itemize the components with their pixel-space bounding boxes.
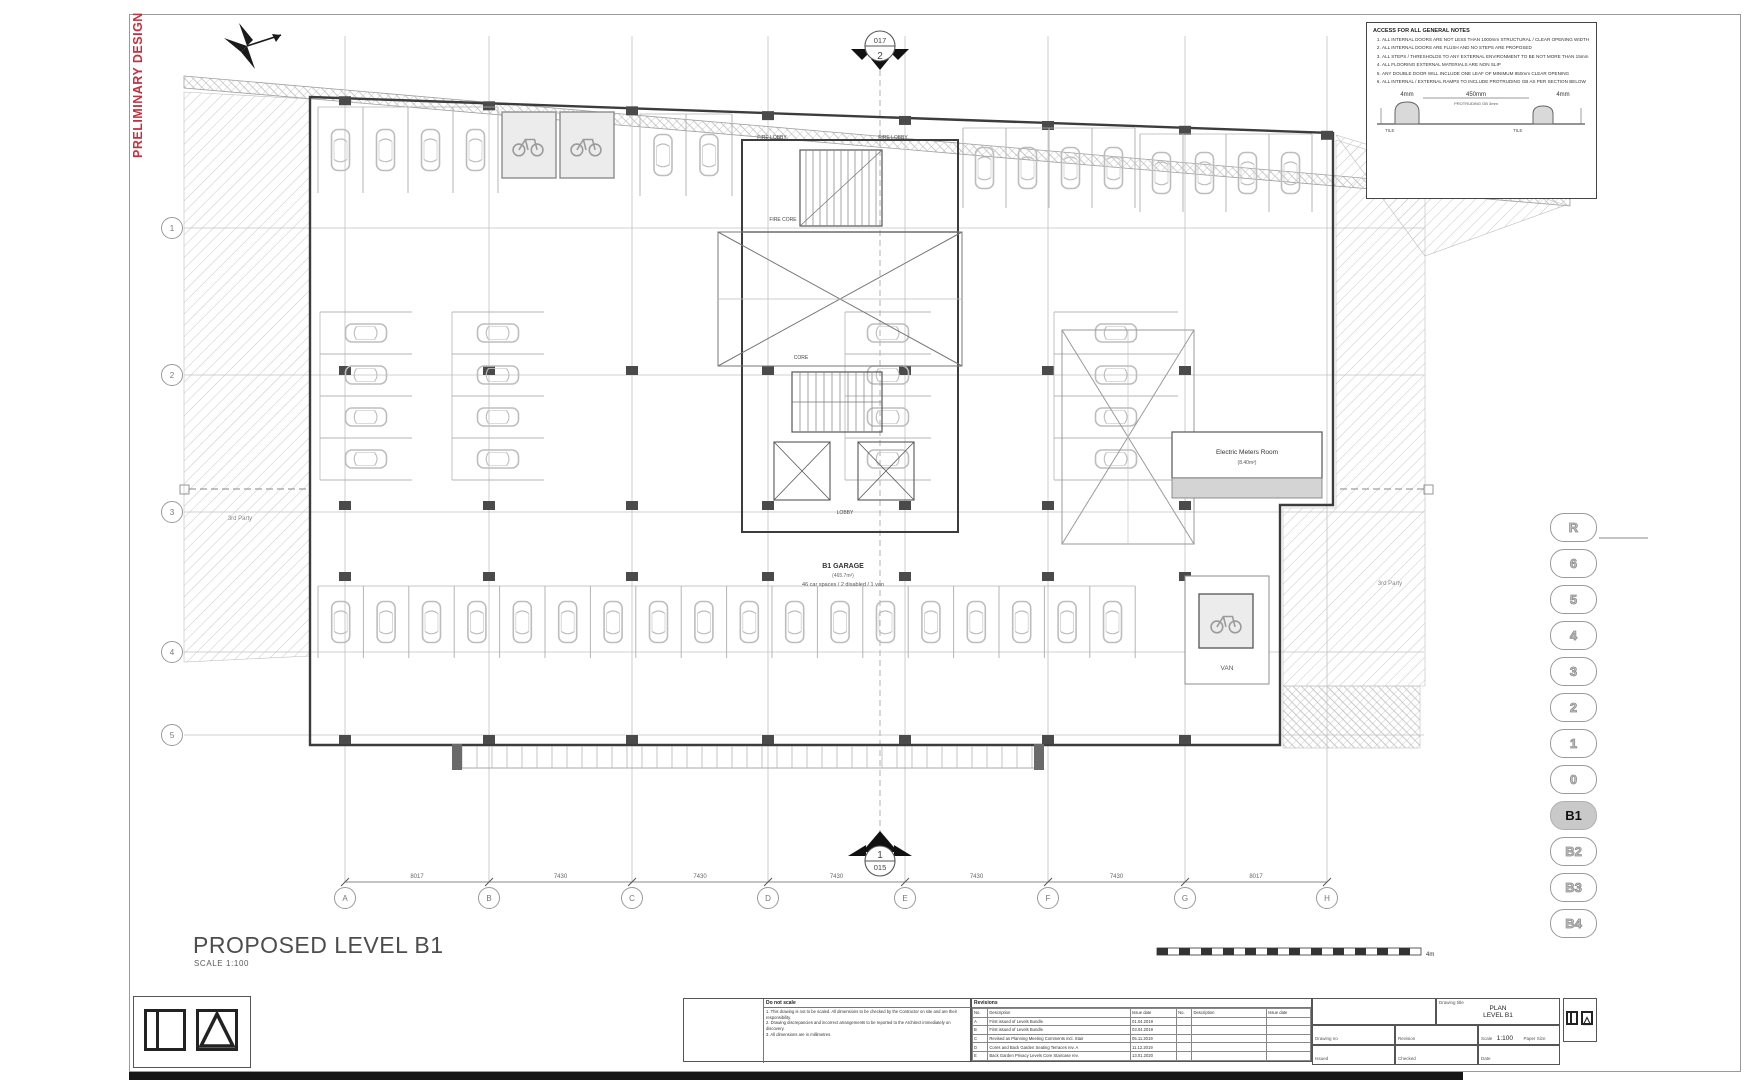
car-icon [478,324,519,342]
drawing-title-value-2: LEVEL B1 [1439,1012,1557,1019]
grid-letter: A [342,894,348,903]
general-notes-panel: ACCESS FOR ALL GENERAL NOTES ALL INTERNA… [1366,22,1597,199]
building-outline [310,97,1333,745]
column [1042,572,1054,581]
level-tab-3[interactable]: 3 [1550,657,1597,686]
rev-cell [1267,1051,1311,1060]
car-icon [377,130,395,171]
rev-cell: D [973,1043,988,1052]
level-tab-b1[interactable]: B1 [1550,801,1597,830]
rev-cell [1177,1026,1192,1035]
detail-dim-right: 4mm [1556,92,1569,98]
rev-row: BFirst issued of Levels Bundle03.04.2019 [973,1026,1311,1035]
rev-cell [1192,1026,1267,1035]
svg-text:015: 015 [874,863,887,872]
rev-cell [1267,1043,1311,1052]
grid-number: 2 [170,371,175,380]
revisions-table: No.DescriptionIssue dateNo.DescriptionIs… [972,1008,1311,1061]
car-icon [604,602,622,643]
svg-text:1: 1 [877,850,883,861]
scale-bar-label: 4m [1426,952,1434,958]
page-title: PROPOSED LEVEL B1 [193,932,444,959]
general-note-item: ALL STEPS / THRESHOLDS TO ANY EXTERNAL E… [1382,54,1590,60]
column [626,572,638,581]
garage-label: B1 GARAGE [822,563,864,570]
scale-value: 1:100 [1497,1035,1513,1042]
section-marker-bottom: 1 015 [848,831,912,876]
rev-cell [1267,1034,1311,1043]
car-icon [700,135,718,176]
car-icon [831,602,849,643]
svg-text:2: 2 [877,51,883,62]
column [899,735,911,744]
level-tab-6[interactable]: 6 [1550,549,1597,578]
car-icon [650,602,668,643]
cycle-store [502,112,614,178]
tb-note-line: 2. Drawing discrepancies and incorrect a… [766,1020,970,1031]
section-marker-top: 017 2 [851,31,909,70]
drawing-title-value-1: PLAN [1439,1005,1557,1012]
revision-cell: Revision E [1395,1025,1478,1045]
level-tab-4[interactable]: 4 [1550,621,1597,650]
garage-area-label: (465.7m²) [832,573,854,579]
revisions-title: Revisions [972,999,1311,1008]
rev-row: CRevised as Planning Meeting Comments in… [973,1034,1311,1043]
detail-dim-left: 4mm [1400,92,1413,98]
rev-cell [1177,1017,1192,1026]
parking-row [318,586,1135,658]
dim-text: 8017 [410,874,424,880]
car-icon [423,602,441,643]
preliminary-design-stamp: PRELIMINARY DESIGN [131,24,148,158]
page-scale: SCALE 1:100 [194,959,249,968]
parking-row [320,312,412,480]
column [483,366,495,375]
car-icon [332,130,350,171]
do-not-scale-title: Do not scale [764,999,972,1008]
dim-text: 7430 [693,874,707,880]
car-icon [346,450,387,468]
car-icon [922,602,940,643]
grid-number: 5 [170,731,175,740]
bottom-retaining-band [452,744,1044,770]
car-icon [346,324,387,342]
structural-columns [339,96,1333,744]
tb-note-line: 1. This drawing is not to be scaled. All… [766,1009,970,1020]
rev-cell: B [973,1026,988,1035]
column [483,572,495,581]
column [899,116,911,125]
column [762,366,774,375]
ramp-nib-detail: 4mm 450mm 4mm PROTRUDING GB 3mm TILE TIL… [1373,88,1589,138]
column [626,106,638,115]
level-tab-1[interactable]: 1 [1550,729,1597,758]
rev-row: EBack Garden Privacy Levels Core Stairca… [973,1051,1311,1060]
grid-letter: G [1182,894,1188,903]
car-icon [695,602,713,643]
general-note-item: ALL FLOORING EXTERNAL MATERIALS ARE NON … [1382,62,1590,68]
date-cell: Date 26.05.2019 [1478,1045,1560,1065]
car-icon [1096,324,1137,342]
level-tab-b4[interactable]: B4 [1550,909,1597,938]
rev-cell [1177,1051,1192,1060]
svg-text:VAN: VAN [1221,665,1234,672]
column [339,735,351,744]
rev-cell: 13.01.2020 [1131,1051,1177,1060]
room-label-core: CORE [794,355,809,361]
general-note-item: ANY DOUBLE DOOR WILL INCLUDE ONE LEAF OF… [1382,71,1590,77]
third-party-label: 3rd Party [228,516,252,522]
tb-note-line: 3. All dimensions are in millimetres. [766,1032,970,1038]
date-label: Date [1481,1056,1491,1061]
rev-cell: C [973,1034,988,1043]
issued-cell: Issued SC [1312,1045,1395,1065]
rev-cell: E [973,1051,988,1060]
dim-text: 8017 [1249,874,1263,880]
electric-meters-room: Electric Meters Room (8.40m²) [1172,432,1322,498]
grid-letter: D [765,894,771,903]
revisions-box: Revisions No.DescriptionIssue dateNo.Des… [971,998,1312,1062]
rev-cell: Revised as Planning Meeting Comments inc… [988,1034,1131,1043]
issued-label: Issued [1315,1056,1328,1061]
detail-tile-right: TILE [1513,128,1523,133]
checked-label: Checked [1398,1056,1416,1061]
parking-stalls [318,107,1312,658]
parking-row [452,312,544,480]
rev-cell [1267,1017,1311,1026]
svg-text:Electric Meters Room: Electric Meters Room [1216,449,1278,456]
general-note-item: ALL INTERNAL DOORS ARE NOT LESS THAN 100… [1382,37,1590,43]
level-tab-2[interactable]: 2 [1550,693,1597,722]
car-icon [868,450,909,468]
car-icon [1153,153,1171,194]
rev-col-header: Description [988,1009,1131,1018]
general-note-item: ALL INTERNAL DOORS ARE FLUSH AND NO STEP… [1382,45,1590,51]
paper-label: Paper Size [1523,1036,1545,1041]
architect-logo-box [133,996,251,1068]
graphic-scale-bar: 4m [1157,948,1434,958]
rev-cell [1177,1034,1192,1043]
car-icon [1058,602,1076,643]
third-party-label: 3rd Party [1378,581,1402,587]
column [483,501,495,510]
level-tab-b3[interactable]: B3 [1550,873,1597,902]
rev-cell [1192,1043,1267,1052]
column [1042,501,1054,510]
sheet-edge-bar [129,1072,1463,1080]
dim-text: 7430 [554,874,568,880]
rev-cell: First issued of Levels Bundle [988,1017,1131,1026]
notes-list: ALL INTERNAL DOORS ARE NOT LESS THAN 100… [1373,37,1590,85]
car-icon [346,408,387,426]
rev-cell: A [973,1017,988,1026]
rev-cell: 03.04.2019 [1131,1026,1177,1035]
column [339,501,351,510]
drawing-no-label: Drawing no [1315,1036,1338,1041]
scale-paper-cell: Scale 1:100 Paper Size A1 [1478,1025,1560,1045]
column [899,572,911,581]
car-icon [868,408,909,426]
car-icon [332,602,350,643]
column [339,572,351,581]
car-icon [654,135,672,176]
van-bay: VAN [1185,576,1269,684]
grid-number: 4 [170,648,175,657]
room-label-fire-core: FIRE CORE [769,217,797,223]
general-note-item: ALL INTERNAL / EXTERNAL RAMPS TO INCLUDE… [1382,79,1590,85]
mini-logo-box [1563,998,1597,1042]
column [1321,131,1333,140]
rev-row: DCores and Back Garden Seating Terraces … [973,1043,1311,1052]
column [899,501,911,510]
dim-text: 7430 [830,874,844,880]
rev-cell [1267,1026,1311,1035]
stair-lift-core [718,140,962,532]
drawing-no-cell: Drawing no F2015-A-100 [1312,1025,1395,1045]
grid-letter: H [1324,894,1330,903]
car-icon [559,602,577,643]
car-icon [478,408,519,426]
do-not-scale-notes: 1. This drawing is not to be scaled. All… [764,1008,972,1038]
column [626,501,638,510]
car-icon [422,130,440,171]
dim-text: 7430 [1110,874,1124,880]
column [483,101,495,110]
rev-cell: Cores and Back Garden Seating Terraces r… [988,1043,1131,1052]
detail-tile-left: TILE [1385,128,1395,133]
column [762,111,774,120]
north-arrow-icon [224,23,281,69]
rev-cell: 05.11.2019 [1131,1034,1177,1043]
level-tab-r[interactable]: R [1550,513,1597,542]
parking-row [963,128,1135,208]
logo-door-icon [144,1009,186,1051]
rev-col-header: Issue date [1131,1009,1177,1018]
car-icon [967,602,985,643]
level-tab-b2[interactable]: B2 [1550,837,1597,866]
rev-cell [1192,1034,1267,1043]
column [1179,501,1191,510]
car-icon [468,602,486,643]
rev-cell [1192,1017,1267,1026]
level-tab-0[interactable]: 0 [1550,765,1597,794]
car-icon [1013,602,1031,643]
column [483,735,495,744]
notes-title: ACCESS FOR ALL GENERAL NOTES [1373,28,1590,34]
grid-letter: F [1046,894,1051,903]
car-icon [513,602,531,643]
do-not-scale-box: Do not scale 1. This drawing is not to b… [683,998,971,1062]
parking-row [1054,312,1178,480]
column [1042,366,1054,375]
scale-label: Scale [1481,1036,1492,1041]
rev-row: AFirst issued of Levels Bundle01.04.2019 [973,1017,1311,1026]
rev-cell [1192,1051,1267,1060]
room-label-fire-lobby: FIRE LOBBY [878,135,908,141]
car-icon [1105,148,1123,189]
mini-logo-triangle-icon [1581,1011,1593,1025]
rev-col-header: Issue date [1267,1009,1311,1018]
grid-number: 1 [170,224,175,233]
grid-letter: E [902,894,907,903]
car-icon [740,602,758,643]
drawing-info-box: Drawing title PLAN LEVEL B1 Drawing no F… [1312,998,1560,1066]
car-icon [377,602,395,643]
logo-triangle-icon [196,1009,238,1051]
svg-text:017: 017 [874,36,887,45]
rev-col-header: No. [1177,1009,1192,1018]
rev-cell: 01.04.2019 [1131,1017,1177,1026]
rev-col-header: Description [1192,1009,1267,1018]
car-icon [877,602,895,643]
column [762,501,774,510]
car-icon [467,130,485,171]
column [626,366,638,375]
car-icon [1104,602,1122,643]
drawing-sheet-viewport: ABCDEFGH12345801774307430743074307430801… [0,0,1755,1080]
car-icon [786,602,804,643]
column [626,735,638,744]
checked-cell: Checked RO [1395,1045,1478,1065]
room-label-fire-lobby: FIRE LOBBY [757,135,787,141]
car-icon [1096,450,1137,468]
detail-protruding: PROTRUDING GB 3mm [1454,101,1498,106]
column [1179,366,1191,375]
grid-number: 3 [170,508,175,517]
mini-logo-door-icon [1566,1011,1578,1025]
double-height-void [718,232,962,366]
column [1042,121,1054,130]
column [339,96,351,105]
drawing-title-cell: Drawing title PLAN LEVEL B1 [1436,998,1560,1025]
column [1179,735,1191,744]
car-icon [478,450,519,468]
level-tab-5[interactable]: 5 [1550,585,1597,614]
column [1179,126,1191,135]
column [762,572,774,581]
detail-dim-mid: 450mm [1466,92,1486,98]
client-cell [1312,998,1436,1025]
rev-cell: Back Garden Privacy Levels Core Staircas… [988,1051,1131,1060]
stair-flight-top [800,150,882,226]
dim-text: 7430 [970,874,984,880]
column [1042,735,1054,744]
rev-cell [1177,1043,1192,1052]
garage-spaces-label: 46 car spaces / 2 disabled / 1 van [802,582,884,588]
rev-cell: First issued of Levels Bundle [988,1026,1131,1035]
svg-text:(8.40m²): (8.40m²) [1238,460,1257,466]
grid-letter: C [629,894,635,903]
rev-cell: 11.12.2019 [1131,1043,1177,1052]
room-label-lobby: LOBBY [837,510,854,516]
rev-col-header: No. [973,1009,988,1018]
column [762,735,774,744]
revision-label: Revision [1398,1036,1415,1041]
grid-letter: B [486,894,491,903]
